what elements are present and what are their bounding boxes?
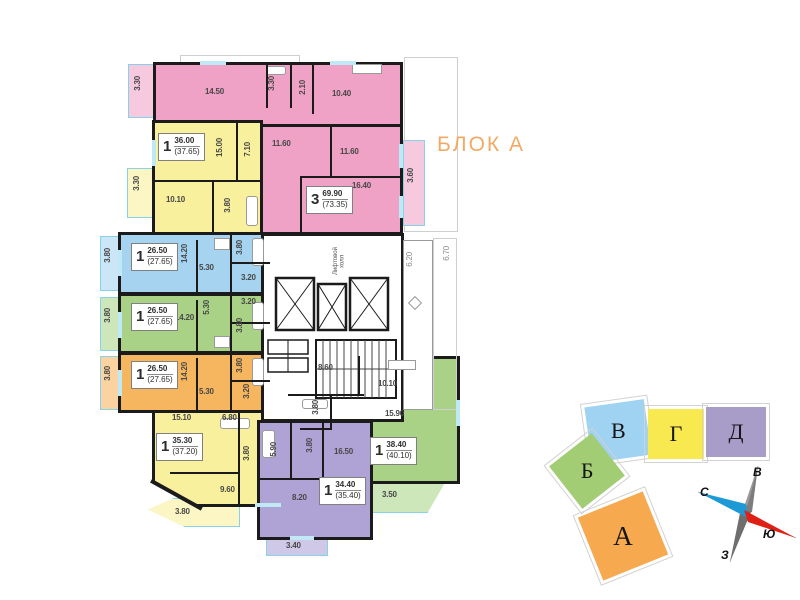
compass-north-label: С xyxy=(700,485,709,499)
wall xyxy=(196,300,198,354)
window xyxy=(399,196,403,218)
room-area-label: 10.10 xyxy=(166,196,185,204)
balcony-pink-left xyxy=(128,64,154,118)
minimap-block-g-label: Г xyxy=(670,421,683,447)
window xyxy=(399,144,403,168)
apartment-info-box: 1 34.40(35.40) xyxy=(319,477,366,505)
window xyxy=(152,140,156,166)
wall xyxy=(330,124,332,178)
rooms-count: 1 xyxy=(136,309,144,324)
bathtub-icon xyxy=(252,302,264,330)
elevator-hall-label: Лифтовой холл xyxy=(333,240,346,282)
fire-balcony-outline xyxy=(433,238,457,410)
rooms-count: 1 xyxy=(163,139,171,154)
apartment-info-box: 1 26.50(27.65) xyxy=(131,361,178,389)
apartment-info-box: 1 26.50(27.65) xyxy=(131,303,178,331)
total-area: (73.35) xyxy=(322,200,347,210)
room-area-label: 14.20 xyxy=(181,362,189,381)
bathtub-icon xyxy=(246,196,258,226)
wall xyxy=(170,472,240,474)
minimap-block-a-label: А xyxy=(613,521,633,552)
living-area: 26.50 xyxy=(147,306,172,317)
room-area-label: 5.30 xyxy=(199,264,214,272)
room-area-label: 3.80 xyxy=(236,318,244,333)
corridor-dim-label: 6.20 xyxy=(406,252,414,267)
wall xyxy=(312,62,314,114)
window xyxy=(118,312,122,338)
wall xyxy=(290,62,292,108)
balcony-pink-right xyxy=(403,140,425,226)
window xyxy=(118,250,122,276)
room-area-label: 3.80 xyxy=(306,438,314,453)
wall xyxy=(300,428,332,430)
window xyxy=(290,536,314,540)
window xyxy=(456,400,460,426)
rooms-count: 1 xyxy=(324,483,332,498)
room-area-label: 3.20 xyxy=(241,274,256,282)
wall xyxy=(236,120,238,182)
apartment-info-box: 1 38.40(40.10) xyxy=(370,437,417,465)
balcony-orange xyxy=(100,356,119,410)
room-area-label: 15.90 xyxy=(385,410,404,418)
room-area-label: 14.20 xyxy=(181,244,189,263)
total-area: (27.65) xyxy=(147,317,172,327)
total-area: (37.20) xyxy=(172,447,197,457)
stove-icon xyxy=(214,238,230,250)
wall xyxy=(196,240,198,295)
total-area: (27.65) xyxy=(147,257,172,267)
minimap-block-g[interactable]: Г xyxy=(648,409,704,459)
living-area: 34.40 xyxy=(335,480,360,491)
balcony-green xyxy=(100,297,119,351)
room-area-label: 5.30 xyxy=(199,388,214,396)
balcony-blue xyxy=(100,236,119,291)
window xyxy=(330,61,356,65)
living-area: 26.50 xyxy=(147,246,172,257)
rooms-count: 1 xyxy=(161,439,169,454)
total-area: (40.10) xyxy=(386,451,411,461)
stove-icon xyxy=(388,360,416,370)
wall xyxy=(212,180,214,235)
window xyxy=(200,61,226,65)
rooms-count: 1 xyxy=(136,249,144,264)
room-area-label: 8.60 xyxy=(318,364,333,372)
room-area-label: 11.60 xyxy=(272,140,291,148)
balcony-area-label: 3.40 xyxy=(286,542,301,550)
room-area-label: 14.20 xyxy=(175,314,194,322)
living-area: 35.30 xyxy=(172,436,197,447)
total-area: (27.65) xyxy=(147,375,172,385)
balcony-area-label: 3.60 xyxy=(407,168,415,183)
block-title: БЛОК А xyxy=(437,133,525,157)
core-plan-icon xyxy=(264,236,400,418)
wall xyxy=(238,410,240,505)
living-area: 26.50 xyxy=(147,364,172,375)
bathtub-icon xyxy=(266,66,286,75)
rooms-count: 3 xyxy=(311,192,319,207)
wall xyxy=(230,352,232,413)
window xyxy=(255,503,281,507)
room-area-label: 3.80 xyxy=(312,400,320,415)
living-area: 38.40 xyxy=(386,440,411,451)
room-area-label: 10.10 xyxy=(378,380,397,388)
wall xyxy=(330,394,332,430)
compass-east-label: В xyxy=(753,465,762,479)
apartment-info-box: 1 36.00(37.65) xyxy=(158,133,205,161)
floor-plan-page: 14.50 3.30 2.10 10.40 11.60 11.60 16.40 … xyxy=(0,0,800,600)
wall xyxy=(358,356,360,396)
total-area: (35.40) xyxy=(335,491,360,501)
room-area-label: 3.30 xyxy=(268,76,276,91)
living-area: 69.90 xyxy=(322,189,347,200)
stove-icon xyxy=(214,336,230,348)
room-area-label: 10.40 xyxy=(332,90,351,98)
room-area-label: 9.60 xyxy=(220,486,235,494)
minimap-block-d-label: Д xyxy=(728,419,743,445)
balcony-area-label: 3.80 xyxy=(104,248,112,263)
room-area-label: 16.50 xyxy=(334,448,353,456)
compass-west-label: З xyxy=(721,548,729,562)
balcony-area-label: 3.80 xyxy=(104,366,112,381)
minimap-block-b-label: Б xyxy=(581,458,594,484)
wall xyxy=(196,358,198,413)
room-area-label: 7.10 xyxy=(244,142,252,157)
room-area-label: 2.10 xyxy=(299,80,307,95)
room-area-label: 3.20 xyxy=(241,298,256,306)
living-area: 36.00 xyxy=(174,136,199,147)
wall xyxy=(230,380,270,382)
apartment-info-box: 3 69.90(73.35) xyxy=(306,186,353,214)
minimap-block-d[interactable]: Д xyxy=(706,407,766,457)
rooms-count: 1 xyxy=(136,367,144,382)
balcony-green-right xyxy=(362,481,446,513)
balcony-dim-label: 6.70 xyxy=(443,246,451,261)
rooms-count: 1 xyxy=(375,443,383,458)
room-area-label: 15.10 xyxy=(172,414,191,422)
wall xyxy=(300,176,302,234)
room-area-label: 14.50 xyxy=(205,88,224,96)
window xyxy=(118,370,122,396)
balcony-area-label: 3.80 xyxy=(175,508,190,516)
wall xyxy=(300,176,403,178)
wall xyxy=(288,394,364,396)
total-area: (37.65) xyxy=(174,147,199,157)
room-area-label: 3.20 xyxy=(243,384,251,399)
room-area-label: 5.30 xyxy=(203,300,211,315)
balcony-area-label: 3.80 xyxy=(104,308,112,323)
wall xyxy=(152,180,263,182)
balcony-area-label: 3.30 xyxy=(134,76,142,91)
room-area-label: 3.80 xyxy=(236,240,244,255)
room-area-label: 3.80 xyxy=(224,198,232,213)
balcony-area-label: 3.30 xyxy=(133,176,141,191)
wall xyxy=(230,262,270,264)
wall xyxy=(290,420,292,478)
room-area-label: 5.90 xyxy=(270,442,278,457)
room-area-label: 15.00 xyxy=(216,138,224,157)
room-area-label: 16.40 xyxy=(352,182,371,190)
room-area-label: 3.80 xyxy=(243,446,251,461)
compass-rose-icon xyxy=(696,458,796,566)
room-area-label: 6.80 xyxy=(222,414,237,422)
minimap-block-a[interactable]: А xyxy=(578,491,668,580)
compass-south-label: Ю xyxy=(763,527,776,541)
apartment-info-box: 1 35.30(37.20) xyxy=(156,433,203,461)
apartment-info-box: 1 26.50(27.65) xyxy=(131,243,178,271)
minimap-block-v-label: В xyxy=(611,418,626,444)
room-area-label: 3.80 xyxy=(236,358,244,373)
room-area-label: 8.20 xyxy=(292,494,307,502)
stove-icon xyxy=(352,64,382,74)
balcony-area-label: 3.50 xyxy=(382,491,397,499)
room-area-label: 11.60 xyxy=(340,148,359,156)
